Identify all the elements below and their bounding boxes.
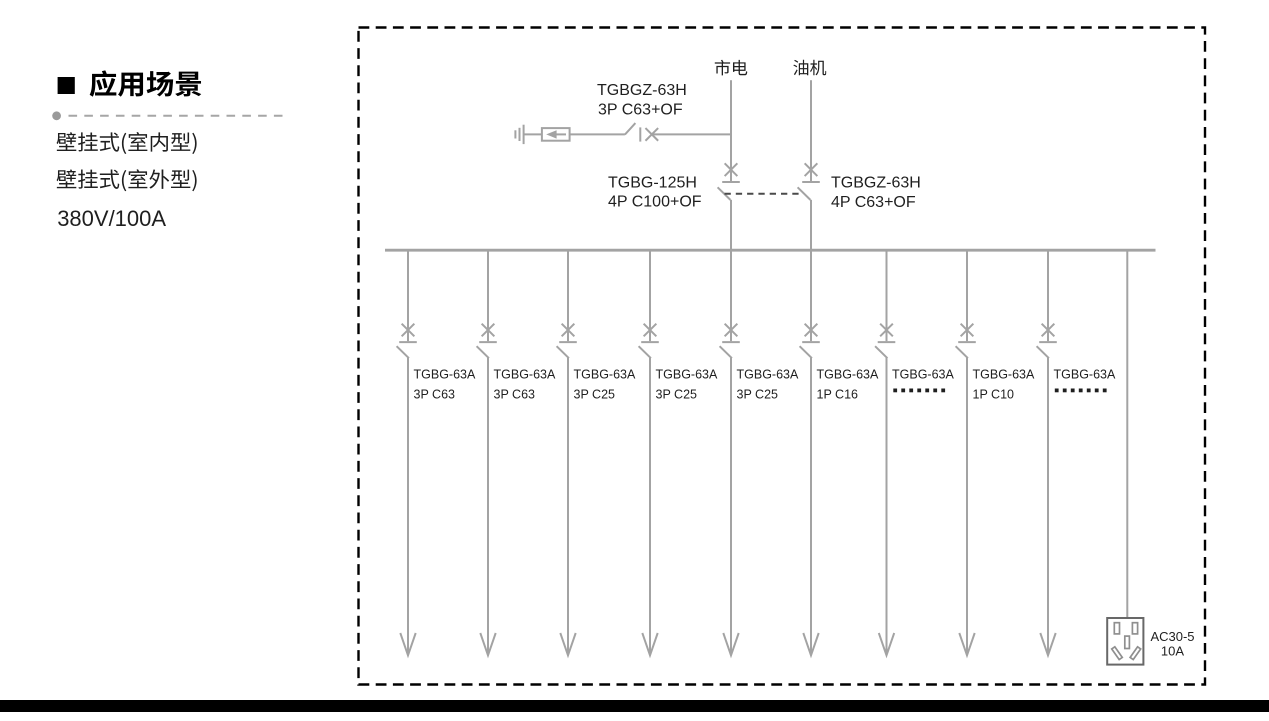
svg-text:TGBG-63A: TGBG-63A (973, 367, 1035, 381)
svg-text:TGBGZ-63H: TGBGZ-63H (831, 175, 921, 192)
svg-text:TGBG-63A: TGBG-63A (574, 367, 636, 381)
svg-text:1P C10: 1P C10 (973, 387, 1015, 401)
svg-text:3P C63: 3P C63 (414, 387, 456, 401)
svg-text:TGBG-63A: TGBG-63A (656, 367, 718, 381)
svg-text:TGBG-125H: TGBG-125H (608, 175, 697, 192)
svg-text:3P C25: 3P C25 (574, 387, 616, 401)
svg-text:380V/100A: 380V/100A (57, 206, 166, 231)
svg-text:TGBG-63A: TGBG-63A (892, 367, 954, 381)
svg-text:TGBG-63A: TGBG-63A (414, 367, 476, 381)
svg-text:TGBG-63A: TGBG-63A (817, 367, 879, 381)
svg-text:TGBG-63A: TGBG-63A (1054, 367, 1116, 381)
svg-text:3P C25: 3P C25 (737, 387, 779, 401)
svg-text:TGBGZ-63H: TGBGZ-63H (597, 82, 687, 99)
svg-text:4P C63+OF: 4P C63+OF (831, 194, 916, 211)
svg-text:3P C63+OF: 3P C63+OF (598, 102, 683, 119)
svg-text:TGBG-63A: TGBG-63A (737, 367, 799, 381)
svg-text:3P C63: 3P C63 (494, 387, 536, 401)
svg-text:AC30-5: AC30-5 (1150, 629, 1194, 644)
svg-text:TGBG-63A: TGBG-63A (494, 367, 556, 381)
svg-text:10A: 10A (1161, 643, 1184, 658)
svg-text:1P C16: 1P C16 (817, 387, 859, 401)
svg-text:3P C25: 3P C25 (656, 387, 698, 401)
svg-text:4P C100+OF: 4P C100+OF (608, 194, 702, 211)
